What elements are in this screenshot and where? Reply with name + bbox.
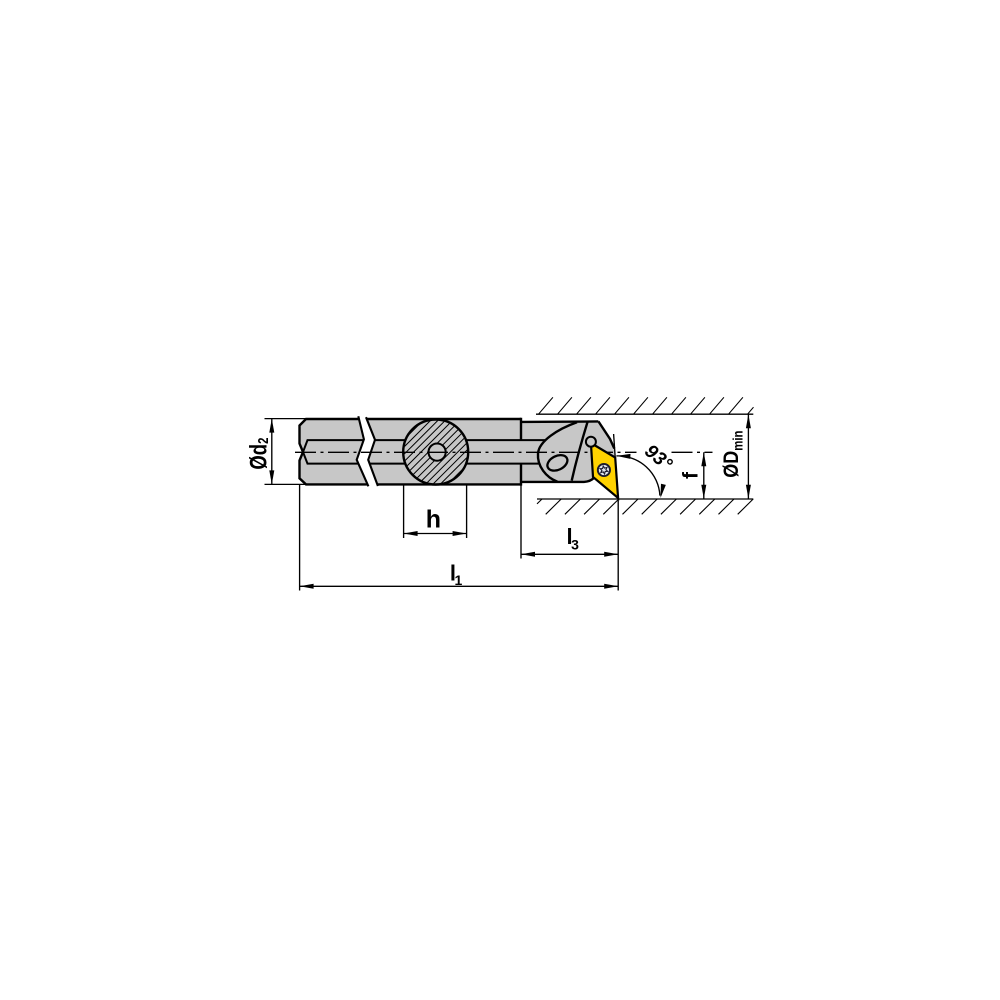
svg-text:ØDmin: ØDmin (719, 431, 745, 478)
svg-text:l1: l1 (450, 560, 463, 588)
svg-text:h: h (426, 505, 441, 533)
svg-text:f: f (680, 471, 703, 479)
svg-text:l3: l3 (567, 524, 580, 553)
svg-text:Ød2: Ød2 (244, 438, 272, 470)
svg-text:93°: 93° (640, 441, 676, 476)
